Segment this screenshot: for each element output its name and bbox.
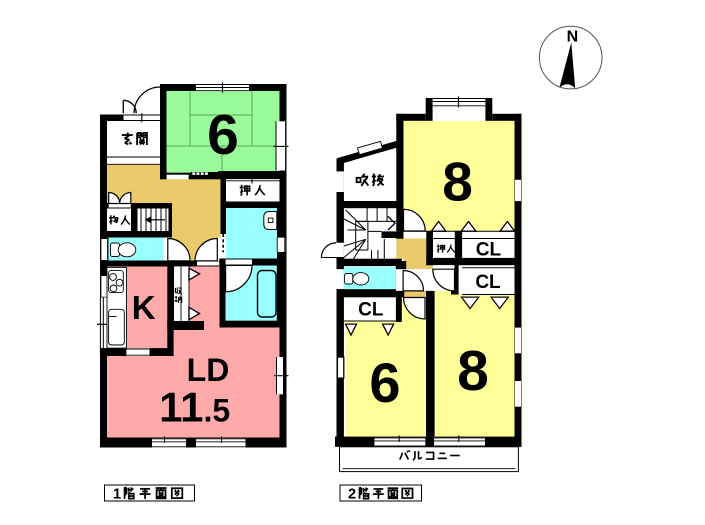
svg-text:K: K — [132, 289, 156, 326]
svg-text:N: N — [567, 29, 579, 46]
svg-text:CL: CL — [475, 272, 501, 293]
svg-text:CL: CL — [476, 240, 502, 261]
svg-text:1: 1 — [113, 487, 121, 503]
svg-text:.5: .5 — [204, 393, 231, 429]
svg-text:11: 11 — [159, 384, 203, 431]
svg-text:CL: CL — [358, 300, 384, 321]
svg-text:6: 6 — [369, 351, 400, 414]
svg-text:2: 2 — [348, 487, 356, 503]
svg-text:6: 6 — [207, 103, 239, 167]
svg-text:8: 8 — [457, 339, 489, 403]
svg-text:8: 8 — [442, 151, 473, 213]
